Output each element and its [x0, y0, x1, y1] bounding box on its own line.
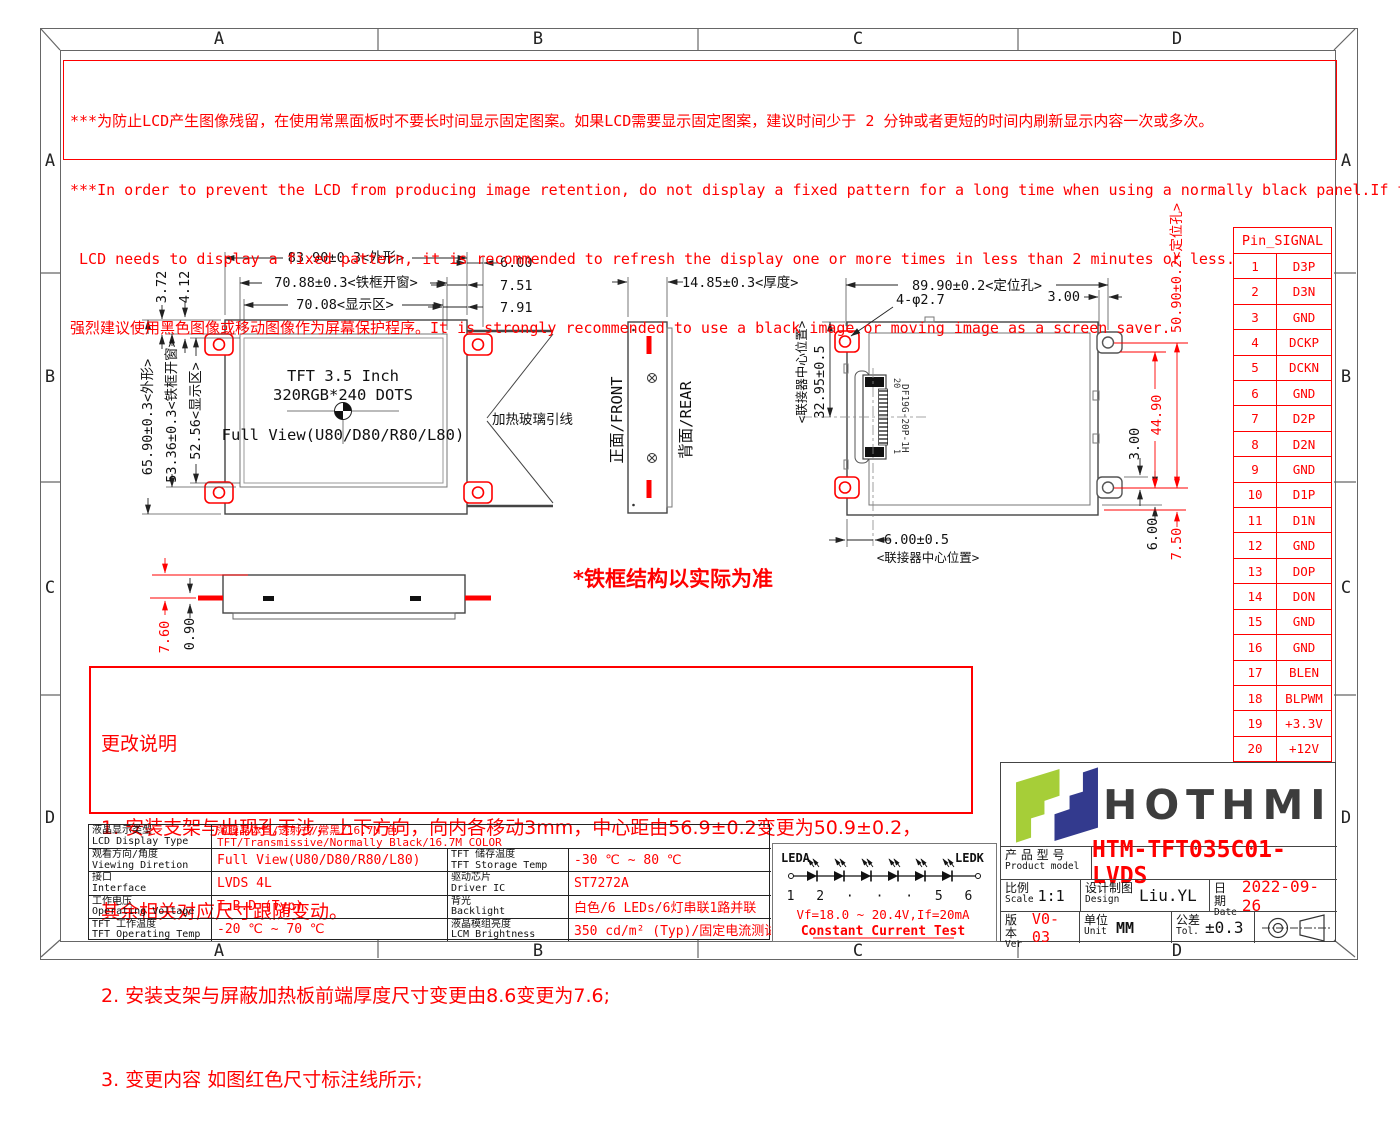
spec-label-driver-ic: 驱动芯片Driver IC — [447, 871, 568, 894]
change-note-line: 3. 变更内容 如图红色尺寸标注线所示; — [101, 1066, 961, 1094]
pin-row: 4DCKP — [1234, 330, 1331, 355]
dim-rear-right-4: 6.00 — [1145, 518, 1161, 551]
spec-label-voltage: 工作电压Operating Voltage — [89, 895, 211, 918]
scale-value: 1:1 — [1038, 887, 1065, 905]
brand-wordmark: HOTHMI — [1103, 781, 1333, 829]
led-symbols — [807, 859, 954, 882]
connector-part-number: DF19G-20P-1H — [899, 384, 910, 453]
pin-row: 11D1N — [1234, 508, 1331, 533]
pin-row: 19+3.3V — [1234, 711, 1331, 736]
pin-table-header: Pin_SIGNAL — [1234, 228, 1331, 254]
scale-cell: 比例Scale 1:1 — [1001, 879, 1080, 911]
pin-row: 3GND — [1234, 305, 1331, 330]
date-value: 2022-09-26 — [1242, 877, 1333, 915]
spec-label-backlight: 背光Backlight — [447, 895, 568, 918]
pin-row: 20+12V — [1234, 737, 1331, 761]
spec-label-storage-temp: TFT 储存温度TFT Storage Temp — [447, 848, 568, 871]
pin-row: 17BLEN — [1234, 661, 1331, 686]
spec-value-display-type: 薄膜晶体管/透射式/常黑/16.7M 色TFT/Transmissive/Nor… — [211, 825, 771, 848]
pin-row: 12GND — [1234, 533, 1331, 558]
tolerance-cell: 公差Tol. ±0.3 — [1171, 911, 1254, 943]
datasheet-page: { "zones": {"cols": ["A","B","C","D"], "… — [0, 0, 1400, 989]
led-spec: Vf=18.0 ~ 20.4V,If=20mA — [796, 907, 970, 922]
spec-value-voltage: T.B.D (Typ) — [211, 895, 447, 918]
change-note-line: 2. 安装支架与屏蔽加热板前端厚度尺寸变更由8.6变更为7.6; — [101, 982, 961, 1010]
led-numbers: 1 2 · · · 5 6 — [787, 889, 980, 904]
spec-label-viewing: 观看方向/角度Viewing Diretion — [89, 848, 211, 871]
dim-bottom-black: 0.90 — [182, 618, 198, 651]
tolerance-value: ±0.3 — [1205, 918, 1244, 937]
front-face-label: 正面/FRONT — [608, 377, 626, 464]
spec-value-backlight: 白色/6 LEDs/6灯串联1路并联 — [568, 895, 771, 918]
panel-viewing-label: Full View(U80/D80/R80/L80) — [222, 426, 465, 444]
projection-cell — [1254, 911, 1337, 943]
spec-value-viewing: Full View(U80/D80/R80/L80) — [211, 848, 447, 871]
designer-name: Liu.YL — [1139, 886, 1197, 905]
product-model-value: HTM-TFT035C01-LVDS — [1091, 846, 1337, 879]
pin-row: 16GND — [1234, 635, 1331, 660]
unit-value: MM — [1116, 919, 1134, 937]
warning-line: 强烈建议使用黑色图像或移动图像作为屏幕保护程序。It is strongly r… — [70, 317, 1330, 340]
bottom-view: 7.60 0.90 — [150, 558, 491, 653]
spec-label-op-temp: TFT 工作温度TFT Operating Temp — [89, 918, 211, 941]
design-cell: 设计制图Design Liu.YL — [1080, 879, 1209, 911]
dim-front-height-outline: 65.90±0.3<外形> — [140, 359, 156, 475]
pin-row: 1D3P — [1234, 254, 1331, 279]
date-cell: 日期Date 2022-09-26 — [1209, 879, 1337, 911]
dim-rear-right-red-5: 7.50 — [1169, 528, 1185, 561]
led-circuit-diagram: LEDA LEDK 1 2 · · · 5 6 Vf=18.0 ~ 20.4V,… — [773, 844, 996, 941]
warning-line: ***为防止LCD产生图像残留，在使用常黑面板时不要长时间显示固定图案。如果LC… — [70, 110, 1330, 133]
pin-row: 13DOP — [1234, 559, 1331, 584]
warning-line: LCD needs to display a fixed pattern, it… — [70, 248, 1330, 271]
dim-rear-right-3: 3.00 — [1127, 428, 1143, 461]
version-value: V0-03 — [1032, 910, 1075, 946]
pin-row: 18BLPWM — [1234, 686, 1331, 711]
led-backlight-circuit: LEDA LEDK 1 2 · · · 5 6 Vf=18.0 ~ 20.4V,… — [772, 843, 997, 942]
pin-row: 6GND — [1234, 381, 1331, 406]
pin-row: 5DCKN — [1234, 356, 1331, 381]
heater-lead-label: 加热玻璃引线 — [492, 411, 573, 428]
projection-symbol-icon — [1258, 913, 1334, 943]
connector-center-h-label: <联接器中心位置> — [877, 550, 980, 565]
pin-row: 2D3N — [1234, 279, 1331, 304]
spec-value-storage-temp: -30 ℃ ~ 80 ℃ — [568, 848, 771, 871]
connector-pin1-label: 1 — [891, 449, 901, 454]
panel-resolution-label: 320RGB*240 DOTS — [273, 386, 413, 404]
spec-value-driver-ic: ST7272A — [568, 871, 771, 894]
change-notes-title: 更改说明 — [101, 730, 961, 758]
pin-row: 10D1P — [1234, 483, 1331, 508]
spec-value-interface: LVDS 4L — [211, 871, 447, 894]
warning-line: ***In order to prevent the LCD from prod… — [70, 179, 1330, 202]
product-model-label: 产 品 型 号 Product model — [1001, 846, 1091, 879]
hothmi-logo-icon — [1011, 767, 1103, 843]
change-notes: 更改说明 1. 安装支架与出现孔干涉，上下方向，向内各移动3mm，中心距由56.… — [89, 666, 973, 814]
unit-cell: 单位Unit MM — [1079, 911, 1171, 943]
dim-connector-center-h: 6.00±0.5 — [884, 532, 949, 548]
dim-rear-right-red-2: 44.90 — [1149, 395, 1165, 436]
spec-value-op-temp: -20 ℃ ~ 70 ℃ — [211, 918, 447, 941]
led-cathode-label: LEDK — [955, 851, 985, 865]
version-cell: 版本Ver V0-03 — [1001, 911, 1079, 943]
logo-row: HOTHMI — [1001, 763, 1335, 846]
dim-bottom-red: 7.60 — [157, 621, 173, 654]
spec-label-interface: 接口Interface — [89, 871, 211, 894]
pin-row: 14DON — [1234, 584, 1331, 609]
pin-row: 7D2P — [1234, 406, 1331, 431]
spec-table: 液晶显示类型LCD Display Type 薄膜晶体管/透射式/常黑/16.7… — [88, 824, 770, 940]
led-anode-label: LEDA — [781, 851, 811, 865]
frame-structure-note: *铁框结构以实际为准 — [573, 563, 773, 593]
pin-row: 9GND — [1234, 457, 1331, 482]
rear-face-label: 背面/REAR — [677, 381, 695, 459]
led-test-note: Constant Current Test — [801, 924, 965, 939]
title-block: HOTHMI 产 品 型 号 Product model HTM-TFT035C… — [1000, 762, 1336, 942]
pin-row: 15GND — [1234, 610, 1331, 635]
image-retention-warning: ***为防止LCD产生图像残留，在使用常黑面板时不要长时间显示固定图案。如果LC… — [63, 60, 1337, 160]
dim-front-height-active: 52.56<显示区> — [188, 362, 204, 459]
pin-row: 8D2N — [1234, 432, 1331, 457]
spec-label-brightness: 液晶模组亮度LCM Brightness — [447, 918, 568, 941]
pin-signal-table: Pin_SIGNAL 1D3P 2D3N 3GND 4DCKP 5DCKN 6G… — [1233, 227, 1332, 762]
panel-size-label: TFT 3.5 Inch — [287, 367, 399, 385]
spec-value-brightness: 350 cd/m² (Typ)/固定电流测试 — [568, 918, 771, 941]
spec-label-display-type: 液晶显示类型LCD Display Type — [89, 825, 211, 848]
